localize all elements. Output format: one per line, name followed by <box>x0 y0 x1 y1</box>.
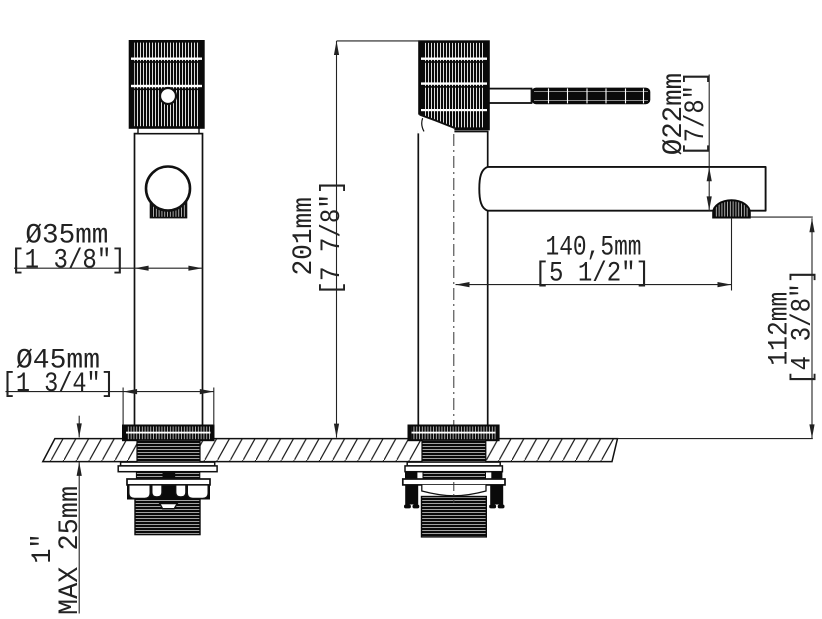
svg-text:[4 3/8″]: [4 3/8″] <box>786 269 818 385</box>
svg-text:[1 3/4″]: [1 3/4″] <box>2 369 115 400</box>
svg-text:[7 7/8″]: [7 7/8″] <box>315 180 347 296</box>
svg-text:MAX 25mm: MAX 25mm <box>55 486 87 615</box>
svg-text:1″: 1″ <box>27 534 59 564</box>
svg-text:[1 3/8″]: [1 3/8″] <box>10 245 126 276</box>
svg-text:[5 1/2″]: [5 1/2″] <box>535 259 651 290</box>
svg-text:[7/8″]: [7/8″] <box>679 71 711 157</box>
